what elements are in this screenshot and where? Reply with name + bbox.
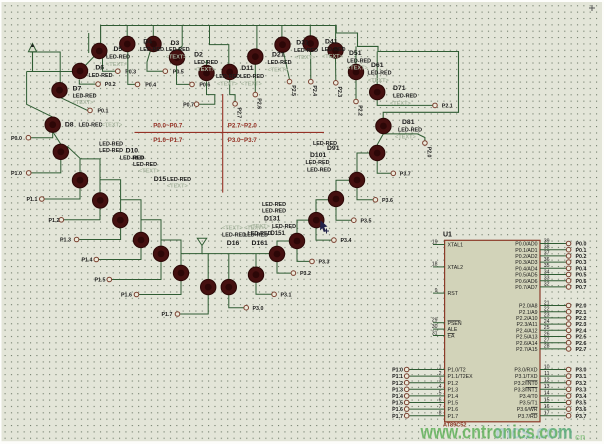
svg-text:D6: D6 xyxy=(95,65,104,72)
svg-text:P2.6: P2.6 xyxy=(576,341,587,347)
svg-text:D131: D131 xyxy=(264,216,280,223)
svg-text:D41: D41 xyxy=(325,39,338,46)
svg-text:2: 2 xyxy=(439,371,442,377)
svg-text:P3.0/RXD: P3.0/RXD xyxy=(514,368,537,374)
svg-text:P0.0~P0.7: P0.0~P0.7 xyxy=(153,122,183,129)
svg-text:P2.4/A12: P2.4/A12 xyxy=(516,328,537,334)
svg-text:D16: D16 xyxy=(227,240,240,247)
svg-text:P2.7: P2.7 xyxy=(236,108,242,119)
svg-text:11: 11 xyxy=(544,371,549,377)
svg-text:P0.3: P0.3 xyxy=(576,260,587,266)
svg-text:14: 14 xyxy=(544,391,550,397)
svg-text:LED-RED: LED-RED xyxy=(166,47,190,53)
svg-text:<TEXT>: <TEXT> xyxy=(167,184,189,190)
svg-text:22: 22 xyxy=(544,307,550,313)
svg-text:LED-RED: LED-RED xyxy=(73,93,97,99)
svg-text:P1.4: P1.4 xyxy=(82,258,93,264)
svg-text:D15: D15 xyxy=(154,176,167,183)
svg-text:P2.0: P2.0 xyxy=(425,147,431,158)
svg-text:P2.7~P2.0: P2.7~P2.0 xyxy=(228,122,258,129)
svg-text:LED-RED: LED-RED xyxy=(306,160,330,166)
svg-text:<TEXT>: <TEXT> xyxy=(322,54,344,60)
svg-text:P1.0~P1.7: P1.0~P1.7 xyxy=(153,137,183,144)
svg-text:P2.1/A9: P2.1/A9 xyxy=(519,310,538,316)
svg-text:P0.0: P0.0 xyxy=(576,242,587,248)
svg-text:P2.0: P2.0 xyxy=(576,304,587,310)
svg-text:28: 28 xyxy=(544,344,550,350)
svg-text:LED-RED: LED-RED xyxy=(262,209,286,215)
svg-text:<TEXT>: <TEXT> xyxy=(217,82,239,88)
svg-text:P2.7: P2.7 xyxy=(576,347,587,353)
svg-text:P1.7: P1.7 xyxy=(162,312,173,318)
svg-text:P1.4: P1.4 xyxy=(392,394,403,400)
svg-text:<TEXT>: <TEXT> xyxy=(295,55,317,61)
svg-text:30: 30 xyxy=(432,324,438,330)
svg-text:21: 21 xyxy=(544,300,550,306)
svg-text:P0.1: P0.1 xyxy=(576,248,587,254)
svg-text:31: 31 xyxy=(432,330,438,336)
svg-text:P0.0: P0.0 xyxy=(11,136,22,142)
svg-text:P3.3: P3.3 xyxy=(576,387,587,393)
svg-text:<TEXT>: <TEXT> xyxy=(222,226,244,232)
svg-text:LED-RED: LED-RED xyxy=(167,177,191,183)
svg-text:LED-RED: LED-RED xyxy=(106,54,130,60)
svg-text:P1.1/T2EX: P1.1/T2EX xyxy=(448,374,474,380)
svg-text:P0.2: P0.2 xyxy=(105,82,116,88)
svg-text:D7: D7 xyxy=(73,86,82,93)
svg-text:LED-RED: LED-RED xyxy=(268,60,292,66)
svg-text:D81: D81 xyxy=(402,119,415,126)
svg-text:P3.4: P3.4 xyxy=(576,394,587,400)
svg-text:<TEXT>: <TEXT> xyxy=(102,123,124,129)
svg-text:LED-RED: LED-RED xyxy=(240,74,264,80)
svg-text:P3.2: P3.2 xyxy=(576,381,587,387)
svg-text:P2.3: P2.3 xyxy=(336,87,342,98)
svg-text:3: 3 xyxy=(439,378,442,384)
svg-text:LED-RED: LED-RED xyxy=(272,224,296,230)
svg-text:P0.4: P0.4 xyxy=(576,266,587,272)
svg-text:P2.7/A15: P2.7/A15 xyxy=(516,347,537,353)
svg-text:36: 36 xyxy=(544,257,550,263)
svg-text:ALE: ALE xyxy=(448,327,458,333)
svg-text:P1.5: P1.5 xyxy=(448,401,459,407)
svg-text:29: 29 xyxy=(432,318,438,324)
svg-text:P0.6/AD6: P0.6/AD6 xyxy=(515,279,537,285)
svg-text:P1.2: P1.2 xyxy=(49,218,60,224)
svg-text:P0.5/AD5: P0.5/AD5 xyxy=(515,273,537,279)
svg-text:P2.2: P2.2 xyxy=(576,316,587,322)
svg-text:P3.2/INT0: P3.2/INT0 xyxy=(514,381,537,387)
svg-text:5: 5 xyxy=(439,391,442,397)
svg-text:P3.7: P3.7 xyxy=(400,171,411,177)
svg-text:D161: D161 xyxy=(252,240,268,247)
svg-text:P3.5: P3.5 xyxy=(361,218,372,224)
svg-text:LED-RED: LED-RED xyxy=(398,127,422,133)
svg-text:EA: EA xyxy=(448,334,455,340)
svg-text:P1.2: P1.2 xyxy=(448,381,459,387)
svg-text:<TEXT>: <TEXT> xyxy=(347,66,369,72)
svg-text:<TEXT>: <TEXT> xyxy=(368,78,390,84)
svg-text:P3.4: P3.4 xyxy=(341,238,352,244)
svg-text:<TEXT>: <TEXT> xyxy=(268,67,290,73)
svg-text:18: 18 xyxy=(432,262,438,268)
svg-text:15: 15 xyxy=(544,397,550,403)
svg-text:P2.2: P2.2 xyxy=(356,105,362,116)
svg-text:cn: cn xyxy=(575,432,586,442)
svg-text:LED-RED: LED-RED xyxy=(322,47,346,53)
svg-text:P3.6: P3.6 xyxy=(382,198,393,204)
svg-text:<TEXT>: <TEXT> xyxy=(241,82,263,88)
svg-text:P0.7: P0.7 xyxy=(183,102,194,108)
svg-text:<TEXT>: <TEXT> xyxy=(166,55,188,61)
svg-text:D2: D2 xyxy=(194,52,203,59)
svg-text:LED-RED: LED-RED xyxy=(347,58,371,64)
svg-text:P3.7: P3.7 xyxy=(576,414,587,420)
svg-text:P2.4: P2.4 xyxy=(576,328,587,334)
svg-text:16: 16 xyxy=(544,404,550,410)
svg-text:D21: D21 xyxy=(272,52,285,59)
svg-text:P0.3: P0.3 xyxy=(125,69,136,75)
svg-text:<TEXT>: <TEXT> xyxy=(395,135,417,141)
svg-text:RED: RED xyxy=(133,155,144,161)
svg-text:P3.1/TXD: P3.1/TXD xyxy=(515,374,538,380)
svg-text:P1.2: P1.2 xyxy=(392,381,403,387)
svg-text:P3.0: P3.0 xyxy=(576,368,587,374)
svg-text:P2.0/A8: P2.0/A8 xyxy=(519,304,538,310)
svg-text:19: 19 xyxy=(432,239,438,245)
svg-text:35: 35 xyxy=(544,263,550,269)
svg-text:D11: D11 xyxy=(241,65,253,72)
svg-text:P0.2: P0.2 xyxy=(576,254,587,260)
svg-text:LED-RED: LED-RED xyxy=(79,123,103,129)
svg-text:8: 8 xyxy=(439,411,442,417)
svg-text:P2.1: P2.1 xyxy=(576,310,587,316)
svg-text:38: 38 xyxy=(544,245,550,251)
svg-text:9: 9 xyxy=(435,288,438,294)
svg-text:P1.3: P1.3 xyxy=(392,387,403,393)
svg-text:D10: D10 xyxy=(126,148,139,155)
svg-text:P0.7/AD7: P0.7/AD7 xyxy=(515,285,537,291)
svg-text:P1.7: P1.7 xyxy=(448,414,459,420)
svg-text:P2.6/A14: P2.6/A14 xyxy=(516,341,537,347)
svg-text:1: 1 xyxy=(439,364,442,370)
svg-text:PSEN: PSEN xyxy=(448,321,462,327)
svg-text:24: 24 xyxy=(544,319,550,325)
svg-text:P3.1: P3.1 xyxy=(576,374,587,380)
svg-text:P1.3: P1.3 xyxy=(448,387,459,393)
svg-text:LED-RED: LED-RED xyxy=(99,148,123,154)
svg-text:P0.4/AD4: P0.4/AD4 xyxy=(515,266,537,272)
svg-text:P3.0~P3.7: P3.0~P3.7 xyxy=(228,137,258,144)
svg-text:D5: D5 xyxy=(114,46,123,53)
svg-text:32: 32 xyxy=(544,282,550,288)
svg-text:P3.3: P3.3 xyxy=(319,260,330,266)
svg-text:P2.5: P2.5 xyxy=(576,335,587,341)
svg-text:39: 39 xyxy=(544,238,550,244)
svg-text:37: 37 xyxy=(544,251,550,257)
svg-text:P3.2: P3.2 xyxy=(300,271,311,277)
svg-text:P3.6/WR: P3.6/WR xyxy=(517,407,538,413)
svg-text:P1.6: P1.6 xyxy=(448,407,459,413)
svg-text:LED-RED: LED-RED xyxy=(89,73,113,79)
svg-text:7: 7 xyxy=(439,404,442,410)
svg-text:P1.0/T2: P1.0/T2 xyxy=(448,368,466,374)
svg-text:P1.6: P1.6 xyxy=(121,293,132,299)
svg-text:<TEXT>: <TEXT> xyxy=(139,169,161,175)
svg-text:P0.3/AD3: P0.3/AD3 xyxy=(515,260,537,266)
svg-text:RST: RST xyxy=(448,291,459,297)
svg-text:P0.6: P0.6 xyxy=(199,83,210,89)
svg-text:<TEXT>: <TEXT> xyxy=(106,62,128,68)
svg-text:13: 13 xyxy=(544,384,550,390)
svg-text:P3.7/RD: P3.7/RD xyxy=(518,414,538,420)
svg-text:D51: D51 xyxy=(349,50,362,57)
svg-text:P0.1/AD1: P0.1/AD1 xyxy=(515,248,537,254)
svg-text:26: 26 xyxy=(544,331,550,337)
svg-text:P3.0: P3.0 xyxy=(253,306,264,312)
svg-text:P0.7: P0.7 xyxy=(576,285,587,291)
svg-text:P2.4: P2.4 xyxy=(311,85,317,96)
svg-text:D61: D61 xyxy=(371,62,384,69)
svg-text:LED-RED: LED-RED xyxy=(140,47,164,53)
svg-text:P0.0/AD0: P0.0/AD0 xyxy=(515,242,537,248)
svg-text:P3.4/T0: P3.4/T0 xyxy=(519,394,537,400)
svg-text:P2.2/A10: P2.2/A10 xyxy=(516,316,537,322)
svg-text:D31: D31 xyxy=(296,40,309,47)
svg-text:D151: D151 xyxy=(271,231,286,237)
svg-text:<TEXT>: <TEXT> xyxy=(244,226,266,232)
svg-text:P2.3/A11: P2.3/A11 xyxy=(517,322,538,328)
svg-text:P3.1: P3.1 xyxy=(281,292,292,298)
svg-text:P0.1: P0.1 xyxy=(98,109,109,115)
svg-text:P1.0: P1.0 xyxy=(11,171,22,177)
svg-text:P3.3/INT1: P3.3/INT1 xyxy=(514,387,537,393)
svg-text:D101: D101 xyxy=(310,152,326,159)
svg-text:LED-RED: LED-RED xyxy=(222,232,246,238)
svg-text:P2.1: P2.1 xyxy=(442,104,453,110)
svg-text:P2.6: P2.6 xyxy=(256,98,262,109)
svg-text:P0.4: P0.4 xyxy=(145,83,156,89)
svg-text:P1.5: P1.5 xyxy=(95,278,106,284)
svg-text:23: 23 xyxy=(544,313,550,319)
svg-text:LED-RED: LED-RED xyxy=(194,60,218,66)
svg-text:<TEXT>: <TEXT> xyxy=(390,101,412,107)
svg-text:<TEXT>: <TEXT> xyxy=(73,100,95,106)
svg-text:34: 34 xyxy=(544,269,550,275)
svg-text:P1.1: P1.1 xyxy=(392,374,403,380)
svg-text:P2.3: P2.3 xyxy=(576,322,587,328)
svg-text:P1.3: P1.3 xyxy=(60,238,71,244)
svg-text:P1.6: P1.6 xyxy=(392,407,403,413)
svg-text:4: 4 xyxy=(439,384,442,390)
svg-text:33: 33 xyxy=(544,276,550,282)
svg-text:P1.7: P1.7 xyxy=(392,414,403,420)
svg-text:10: 10 xyxy=(544,364,550,370)
svg-text:P3.6: P3.6 xyxy=(576,407,587,413)
svg-text:XTAL2: XTAL2 xyxy=(448,265,464,271)
svg-text:D71: D71 xyxy=(393,85,406,92)
svg-text:<TEXT>: <TEXT> xyxy=(194,67,216,73)
svg-text:LED-RED: LED-RED xyxy=(244,232,268,238)
svg-text:P2.5: P2.5 xyxy=(290,85,296,96)
svg-text:D4: D4 xyxy=(143,39,152,46)
svg-text:LED-RED: LED-RED xyxy=(368,70,392,76)
svg-text:6: 6 xyxy=(439,397,442,403)
svg-text:D3: D3 xyxy=(171,40,180,47)
svg-text:P1.4: P1.4 xyxy=(448,394,459,400)
svg-text:LED-RED: LED-RED xyxy=(216,74,240,80)
svg-text:LED-RED: LED-RED xyxy=(307,168,331,174)
svg-text:12: 12 xyxy=(544,378,550,384)
svg-text:25: 25 xyxy=(544,325,550,331)
svg-text:P3.5/T1: P3.5/T1 xyxy=(519,401,537,407)
svg-text:U1: U1 xyxy=(443,232,452,239)
svg-text:P3.5: P3.5 xyxy=(576,401,587,407)
svg-text:nics.com: nics.com xyxy=(495,423,573,444)
svg-text:P1.1: P1.1 xyxy=(27,197,38,203)
svg-text:17: 17 xyxy=(544,411,550,417)
svg-text:LED-RED: LED-RED xyxy=(99,141,123,147)
svg-text:XTAL1: XTAL1 xyxy=(448,243,464,249)
svg-text:P0.5: P0.5 xyxy=(576,273,587,279)
svg-text:P2.5/A13: P2.5/A13 xyxy=(516,335,537,341)
svg-text:P0.5: P0.5 xyxy=(173,69,184,75)
svg-text:P0.2/AD2: P0.2/AD2 xyxy=(515,254,537,260)
svg-text:D91: D91 xyxy=(327,145,340,152)
svg-text:27: 27 xyxy=(544,338,550,344)
svg-text:D8: D8 xyxy=(65,122,74,129)
svg-text:P1.0: P1.0 xyxy=(392,368,403,374)
svg-text:P0.6: P0.6 xyxy=(576,279,587,285)
svg-text:LED-RED: LED-RED xyxy=(262,202,286,208)
svg-text:LED-RED: LED-RED xyxy=(294,48,318,54)
svg-text:P1.5: P1.5 xyxy=(392,401,403,407)
svg-text:LED-RED: LED-RED xyxy=(133,162,157,168)
svg-text:LED-RED: LED-RED xyxy=(393,94,417,100)
